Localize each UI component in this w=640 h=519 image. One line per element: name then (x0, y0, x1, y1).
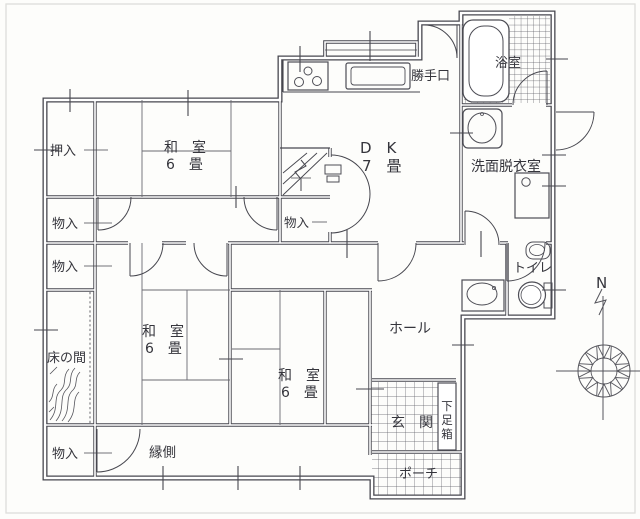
small-cabinet-icon (325, 165, 341, 174)
room-label-engawa: 縁側 (149, 445, 176, 461)
room-label-getabako-char3: 箱 (441, 427, 453, 441)
staircase-icon (280, 148, 330, 195)
room-size-washitsu-s: 6 畳 (281, 385, 318, 401)
room2-door-arc-east (194, 243, 227, 276)
back-door-arc (424, 25, 457, 58)
room-size-washitsu-nw: 6 畳 (166, 157, 203, 173)
washroom-door-arc (465, 211, 499, 245)
engawa-door-arc (97, 429, 140, 472)
room-label-monoire-nw: 物入 (52, 217, 78, 232)
north-compass (556, 289, 640, 420)
room-label-getabako-char2: 足 (441, 413, 453, 427)
room-label-monoire-sw: 物入 (52, 447, 78, 462)
toilet-icon (519, 282, 553, 308)
room-label-monoire-w: 物入 (52, 260, 78, 275)
washbasin-icon (463, 109, 502, 148)
side-entry-door-arc (556, 112, 594, 150)
room-label-genkan: 玄 関 (391, 414, 433, 431)
room-size-washitsu-w: 6 畳 (145, 341, 182, 357)
stairs-direction-arrow (295, 160, 306, 191)
compass-north-label: N (596, 274, 607, 292)
room-label-porch: ポーチ (399, 467, 438, 482)
washing-machine-icon (515, 173, 549, 218)
compass-arrow-zigzag (595, 289, 606, 315)
hall-washbasin-icon (462, 280, 504, 311)
label-katteguchi: 勝手口 (411, 69, 450, 84)
wood-grain-icon (49, 367, 80, 422)
room-label-washitsu-nw: 和 室 (164, 139, 206, 156)
room-size-dk: 7 畳 (362, 157, 402, 175)
stove-icon (288, 62, 328, 90)
room-label-dk: D K (360, 139, 398, 157)
room-label-toire: トイレ (513, 261, 552, 276)
floor-plan: 押入 和 室 6 畳 物入 物入 床の間 物入 和 室 6 畳 和 室 6 畳 … (0, 0, 640, 519)
corridor-door-arc-west (98, 197, 131, 230)
room-label-hall: ホール (389, 321, 431, 337)
room-label-yokushitsu: 浴室 (495, 55, 521, 71)
room-label-monoire-stairs: 物入 (284, 215, 310, 230)
floor-plan-page: 押入 和 室 6 畳 物入 物入 床の間 物入 和 室 6 畳 和 室 6 畳 … (0, 0, 640, 519)
tatami-seams (142, 100, 280, 425)
room-label-tokonoma: 床の間 (47, 351, 86, 366)
room-label-senmen: 洗面脱衣室 (471, 158, 541, 175)
room-label-washitsu-s: 和 室 (278, 367, 320, 384)
room-label-washitsu-w: 和 室 (142, 323, 184, 340)
room2-door-arc-west (130, 243, 163, 276)
room-label-getabako-char1: 下 (441, 399, 453, 413)
room-label-oshiire: 押入 (50, 144, 76, 159)
dk-hall-door-arc (378, 243, 416, 281)
corridor-door-arc-east (244, 197, 277, 230)
